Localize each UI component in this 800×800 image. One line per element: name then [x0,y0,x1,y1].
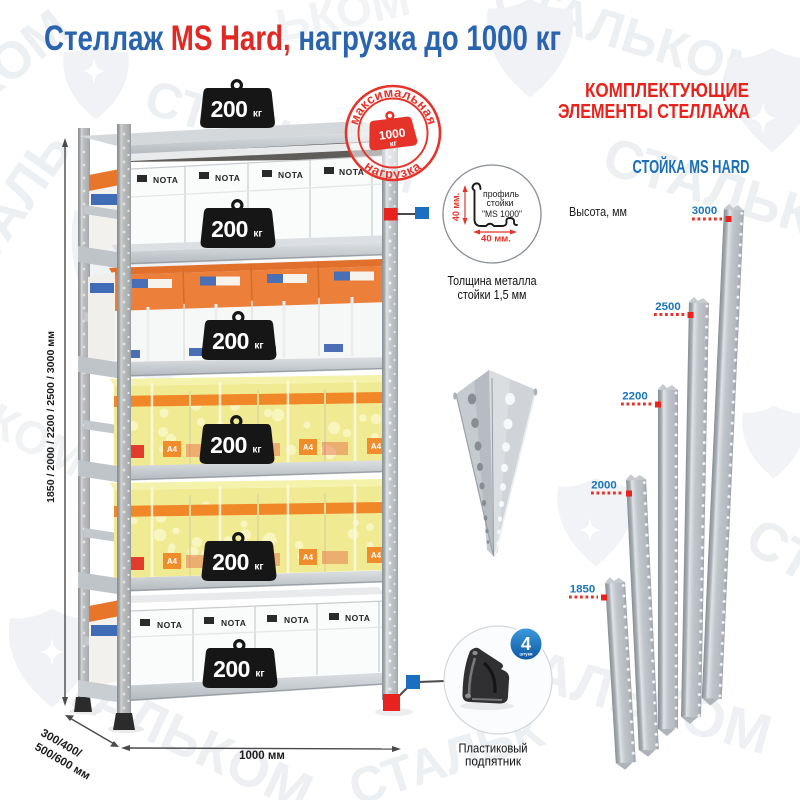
svg-text:Толщина металла: Толщина металла [448,274,537,288]
svg-text:1850 / 2000 / 2200 / 2500 / 30: 1850 / 2000 / 2200 / 2500 / 3000 мм [45,331,57,503]
svg-text:1000 мм: 1000 мм [239,750,285,762]
svg-text:Высота, мм: Высота, мм [569,204,627,219]
svg-text:стойки 1,5 мм: стойки 1,5 мм [458,288,527,302]
svg-text:A4: A4 [303,443,314,452]
svg-text:СТОЙКА MS HARD: СТОЙКА MS HARD [633,156,750,177]
svg-text:2500: 2500 [655,301,681,313]
svg-text:2200: 2200 [622,391,648,403]
svg-text:A4: A4 [167,557,178,566]
svg-text:NOTA: NOTA [278,170,303,180]
svg-text:A4: A4 [167,445,178,454]
svg-text:Стеллаж MS Hard, нагрузка до 1: Стеллаж MS Hard, нагрузка до 1000 кг [44,19,561,58]
svg-text:A4: A4 [371,551,382,560]
svg-text:40 мм.: 40 мм. [481,234,511,245]
svg-text:NOTA: NOTA [221,618,246,628]
svg-text:40 мм.: 40 мм. [451,193,461,221]
svg-text:A4: A4 [303,553,314,562]
svg-text:Пластиковый: Пластиковый [459,742,528,756]
svg-text:NOTA: NOTA [153,175,178,185]
svg-text:2000: 2000 [591,480,617,492]
svg-text:NOTA: NOTA [157,620,182,630]
svg-text:подпятник: подпятник [465,755,521,769]
svg-text:ЭЛЕМЕНТЫ СТЕЛЛАЖА: ЭЛЕМЕНТЫ СТЕЛЛАЖА [558,101,750,123]
svg-text:NOTA: NOTA [345,613,370,623]
svg-text:NOTA: NOTA [284,615,309,625]
svg-text:1850: 1850 [570,584,596,596]
svg-text:A4: A4 [371,442,382,451]
svg-text:КОМПЛЕКТУЮЩИЕ: КОМПЛЕКТУЮЩИЕ [585,80,749,102]
svg-text:штуки: штуки [520,652,533,657]
svg-text:"MS 1000": "MS 1000" [482,209,522,219]
svg-text:стойки: стойки [487,198,514,208]
svg-text:3000: 3000 [692,205,718,217]
svg-text:NOTA: NOTA [215,173,240,183]
